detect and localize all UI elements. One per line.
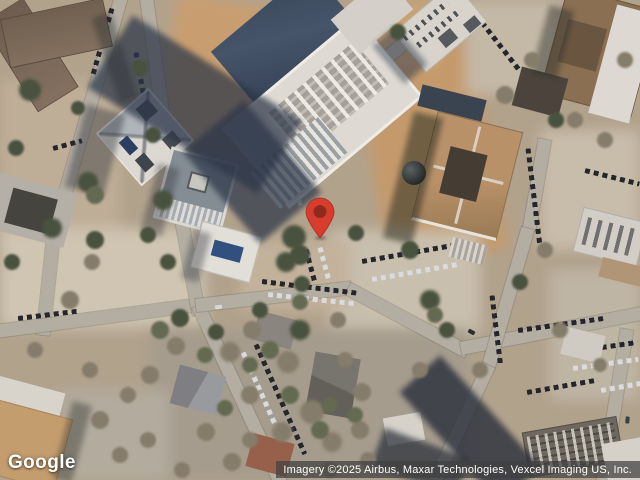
car <box>625 416 630 423</box>
rooftop-unit <box>438 28 459 48</box>
rooftop-unit <box>135 153 155 173</box>
rooftop-unit <box>439 146 487 202</box>
tree-cluster-olive <box>0 0 6 6</box>
rooftop-units <box>581 217 638 257</box>
car <box>215 305 222 310</box>
solar-panel <box>211 240 244 263</box>
pin-inner-dot <box>314 205 327 218</box>
map-pin-icon[interactable] <box>305 197 335 239</box>
google-logo[interactable]: Google <box>8 452 76 474</box>
window-row <box>416 7 463 48</box>
imagery-attribution: Imagery ©2025 Airbus, Maxar Technologies… <box>276 461 640 478</box>
map-viewport: Google Imagery ©2025 Airbus, Maxar Techn… <box>0 0 640 480</box>
satellite-map[interactable] <box>0 0 640 480</box>
